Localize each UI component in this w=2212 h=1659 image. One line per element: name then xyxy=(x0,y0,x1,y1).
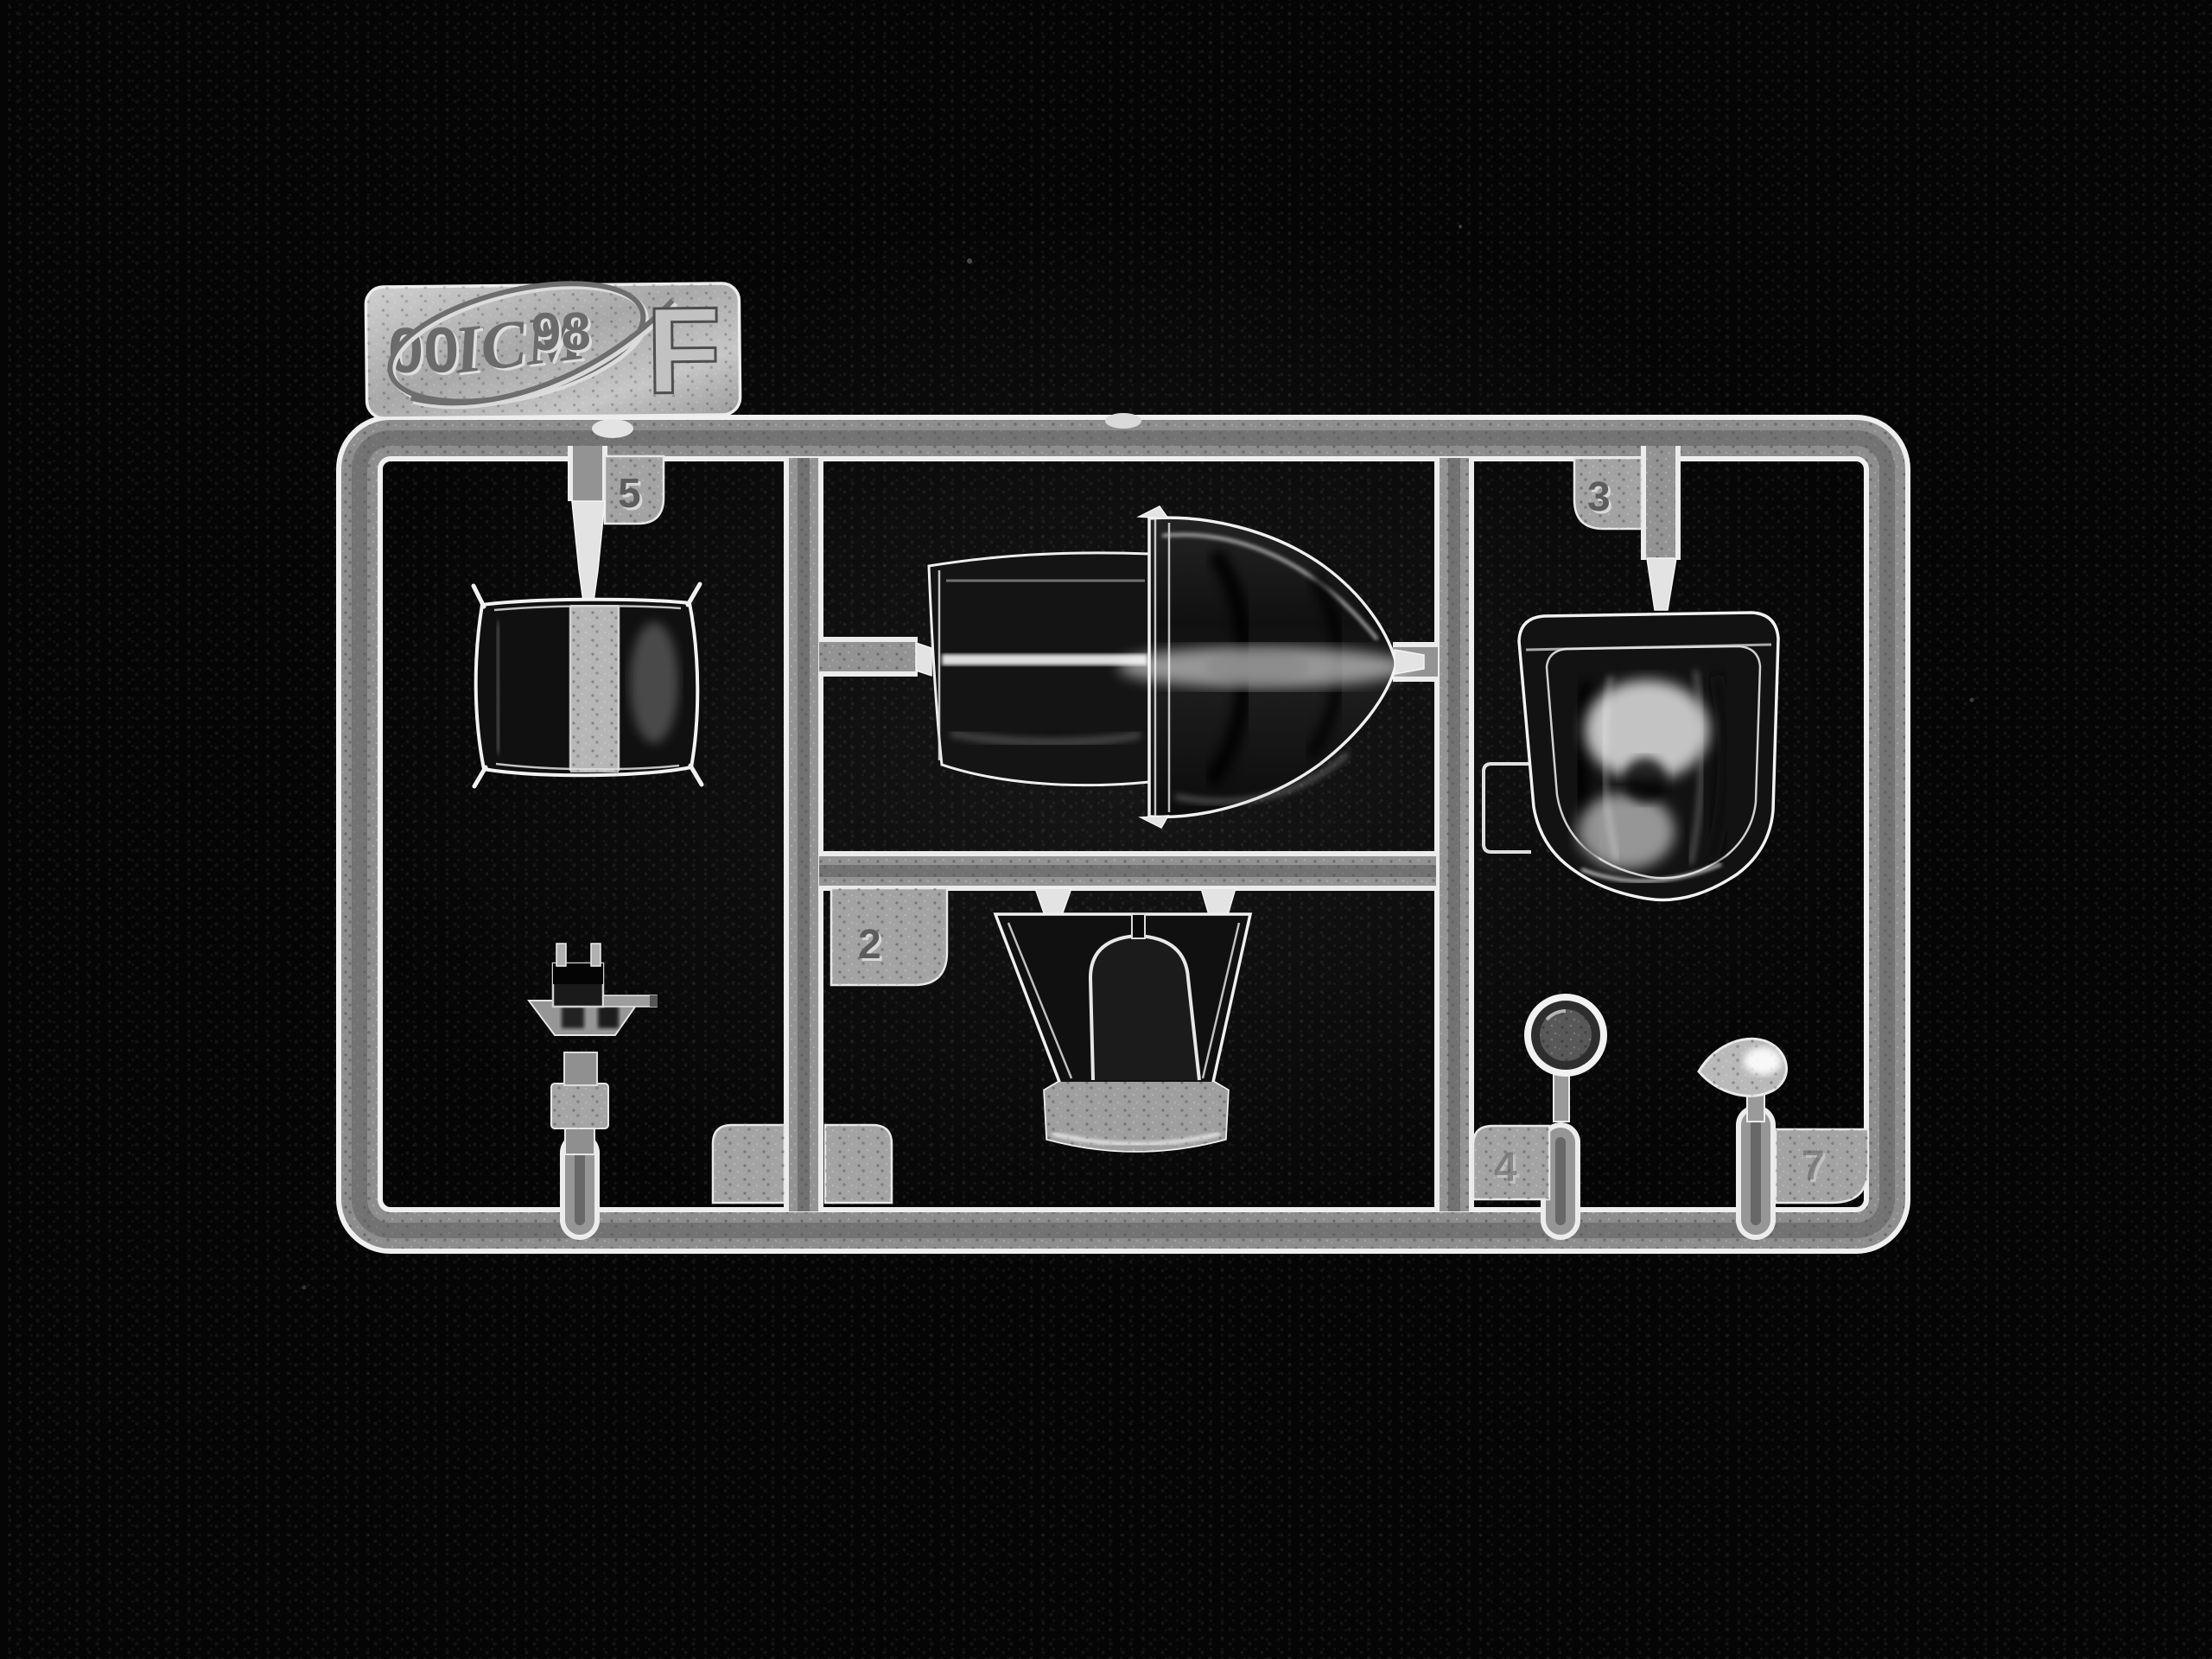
sprue-letter: F xyxy=(645,282,721,420)
dome-side-flange xyxy=(1484,764,1531,852)
part-main-canopy xyxy=(916,506,1424,828)
photo-of-clear-sprue: 00 00 ICM ICM 98 98 F 5 5 3 3 2 2 xyxy=(0,0,2212,1659)
svg-text:7: 7 xyxy=(1802,1143,1825,1189)
svg-text:5: 5 xyxy=(618,471,641,517)
sprue-nub xyxy=(1105,413,1141,429)
tab-3: 3 3 xyxy=(1574,458,1642,529)
tab-blank-left xyxy=(713,1125,785,1203)
part-gunsight xyxy=(529,944,658,1154)
svg-text:98: 98 xyxy=(531,302,591,363)
svg-text:3: 3 xyxy=(1587,474,1611,520)
part-4-round-lens xyxy=(1528,997,1604,1122)
part-7-teardrop-lens xyxy=(1699,1039,1787,1122)
gunsight-side-rod xyxy=(603,995,657,1007)
svg-text:4: 4 xyxy=(1494,1145,1517,1191)
tab-2: 2 2 xyxy=(831,888,947,985)
part-3-bubble-canopy xyxy=(1484,558,1778,899)
sprue-nub xyxy=(592,419,633,438)
tab-blank-right xyxy=(825,1125,892,1203)
label-tag: 00 00 ICM ICM 98 98 F xyxy=(365,261,741,427)
part-2-windscreen xyxy=(995,888,1250,1151)
mold-mark-right: 98 98 xyxy=(531,302,594,365)
sprue-illustration: 00 00 ICM ICM 98 98 F 5 5 3 3 2 2 xyxy=(0,0,2212,1659)
tab-5: 5 5 xyxy=(605,456,664,524)
svg-text:2: 2 xyxy=(858,922,881,968)
tab-4: 4 4 xyxy=(1473,1126,1549,1199)
part-5-clear-panel xyxy=(474,501,702,786)
tab-7: 7 7 xyxy=(1776,1129,1868,1203)
